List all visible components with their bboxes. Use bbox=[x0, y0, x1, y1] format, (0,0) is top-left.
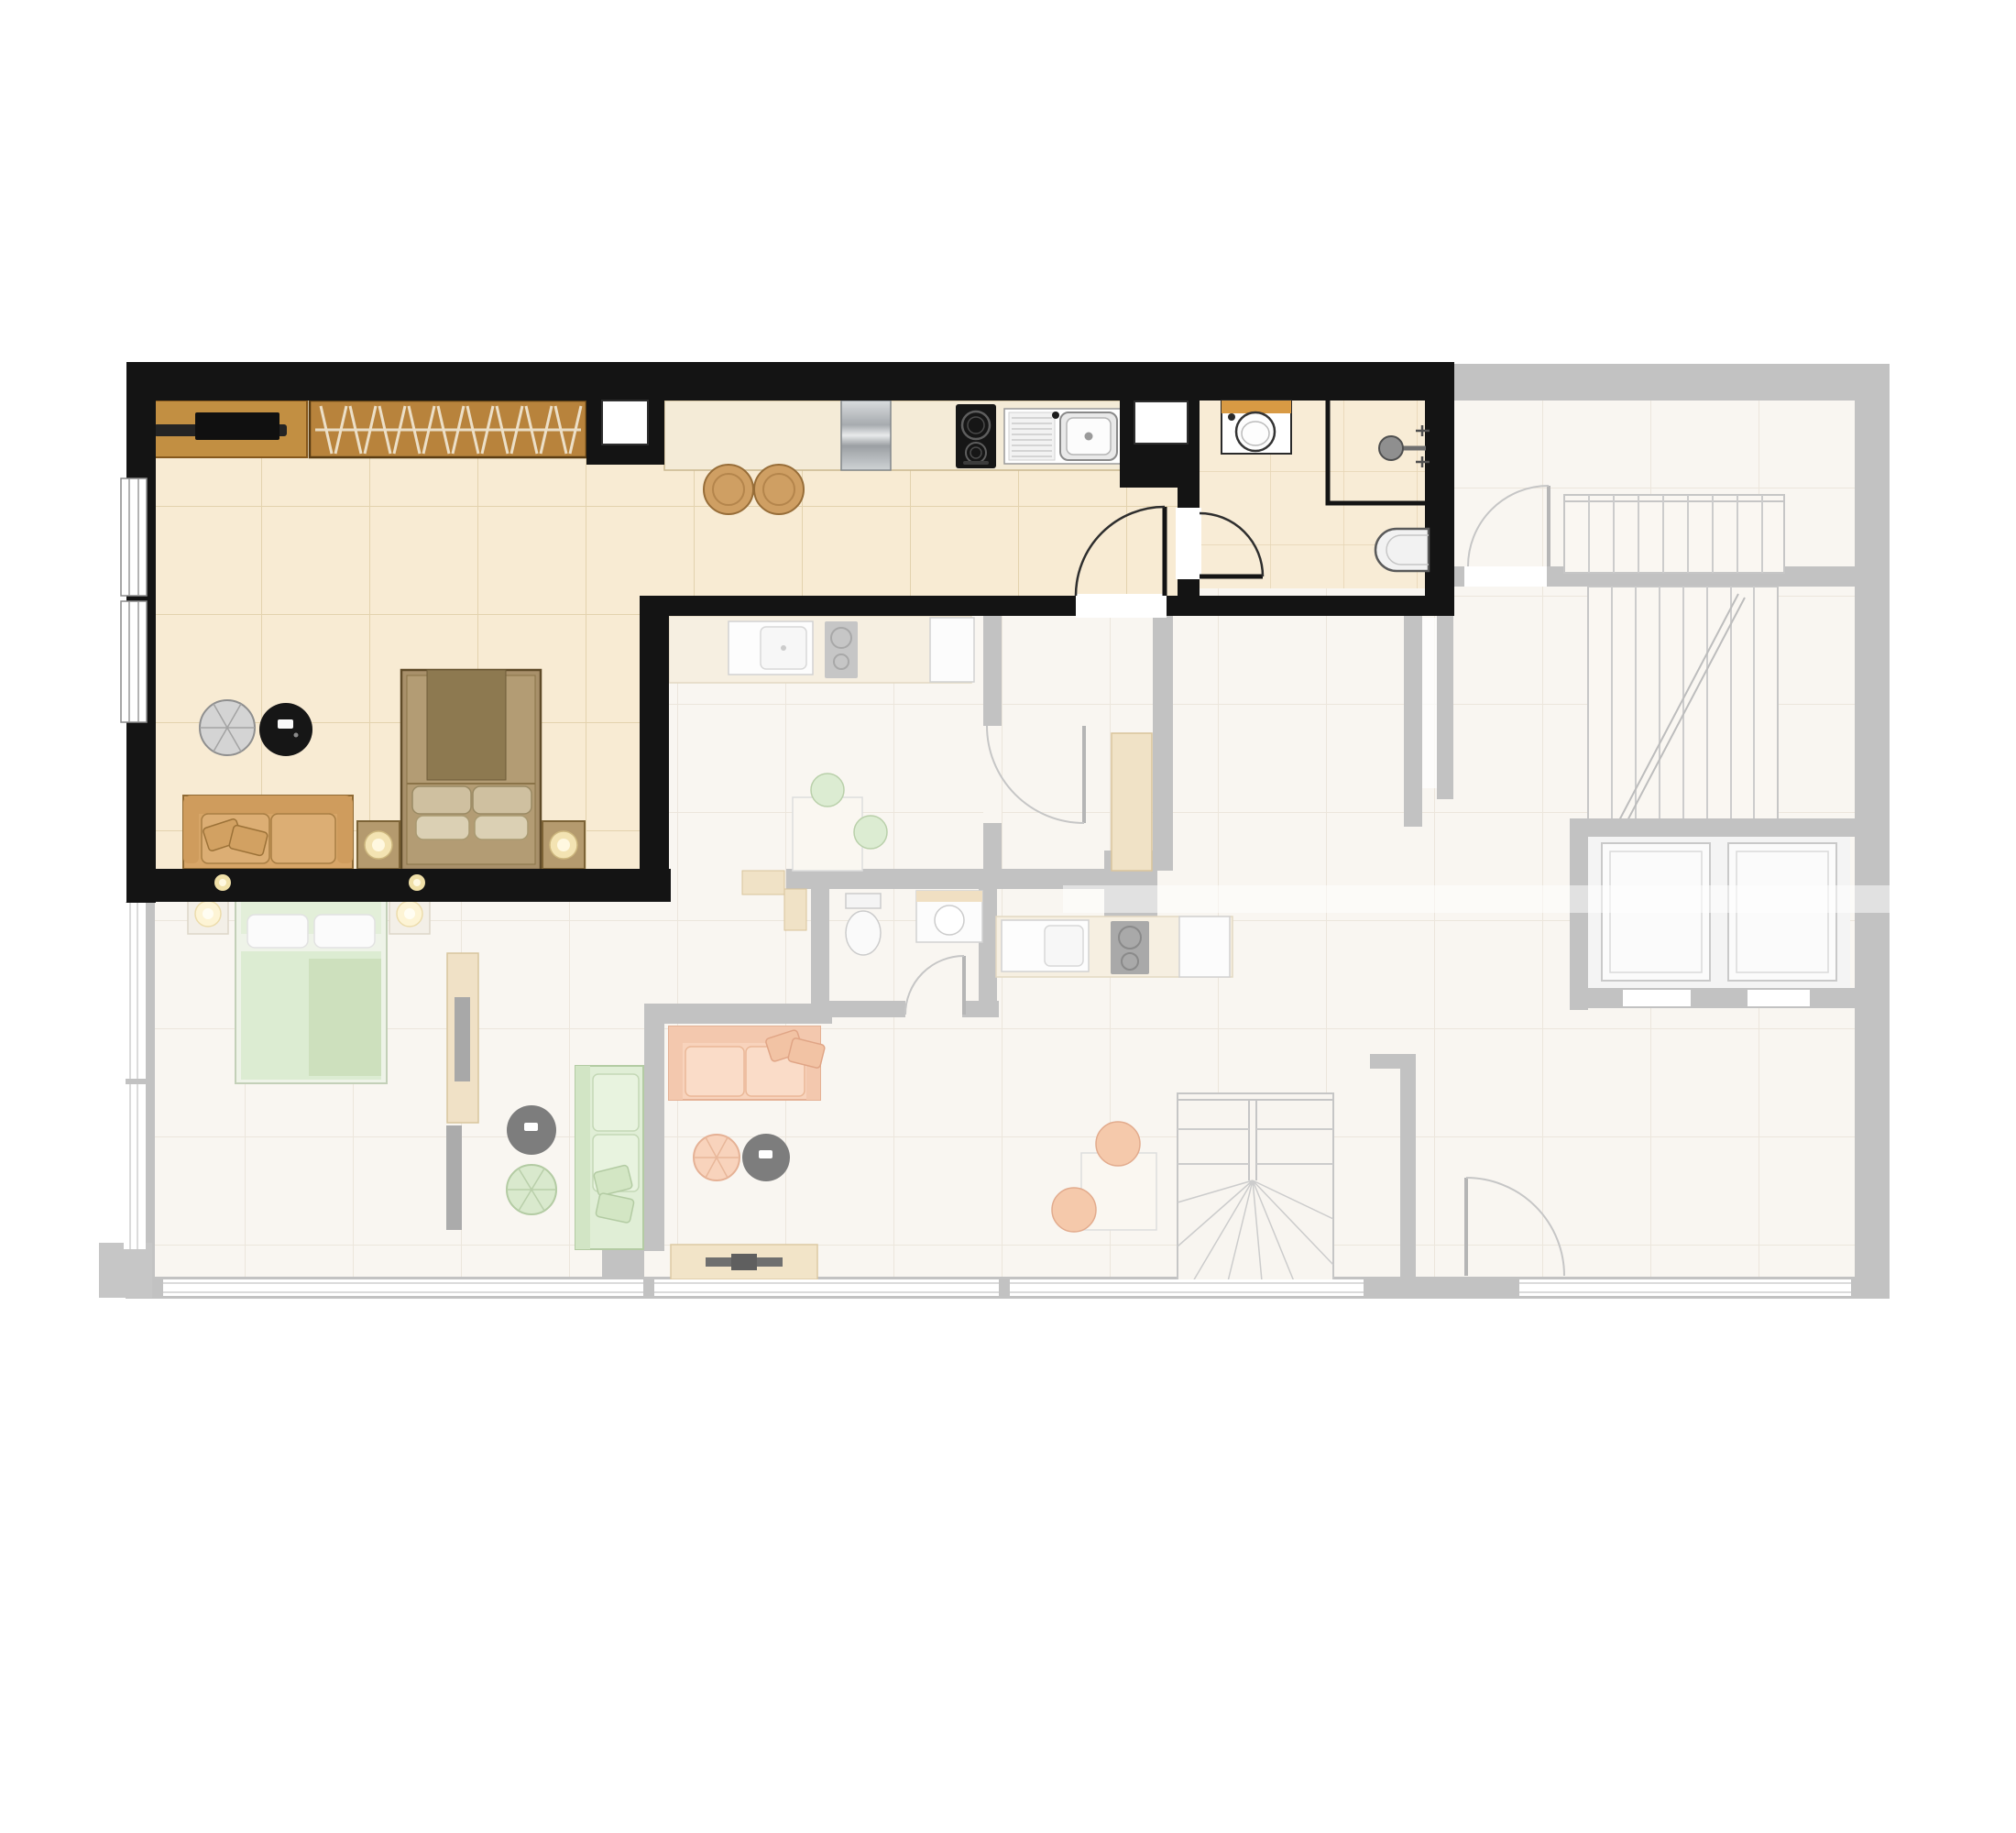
dining2-chair-2 bbox=[1052, 1188, 1096, 1232]
window-left-f1 bbox=[124, 903, 146, 1079]
floor-plan bbox=[0, 0, 2016, 1833]
wall-bath2-top bbox=[786, 869, 1107, 889]
table2-speck bbox=[524, 1123, 538, 1131]
window-left-f2 bbox=[124, 1084, 146, 1249]
window-bottom-3 bbox=[1010, 1279, 1364, 1296]
shelf2 bbox=[446, 1125, 462, 1230]
sink-faucet bbox=[1052, 412, 1059, 419]
sofa3-arm-left bbox=[669, 1043, 683, 1100]
floor-plan-svg bbox=[0, 0, 2016, 1833]
dining2-chair-1 bbox=[1096, 1122, 1140, 1166]
wall-hall-left-stub bbox=[983, 823, 1002, 871]
wall-bath-jamb-upper bbox=[1178, 486, 1200, 510]
window-bottom-1 bbox=[163, 1279, 643, 1296]
tv2-screen bbox=[455, 997, 470, 1081]
elevator-bottom-wall bbox=[1570, 988, 1868, 1008]
lamp-left-core bbox=[372, 839, 385, 851]
kitchen2-fridge bbox=[930, 618, 974, 682]
window-bottom-2 bbox=[654, 1279, 999, 1296]
window-2 bbox=[121, 601, 147, 722]
kitchen2-drain bbox=[781, 645, 786, 651]
elevator-shaft-top bbox=[1570, 818, 1868, 837]
bath-door-opening bbox=[1176, 508, 1201, 579]
window-1 bbox=[121, 478, 147, 596]
tv-screen bbox=[195, 412, 279, 440]
wall-bath2-left bbox=[811, 889, 829, 1017]
basin2-wood bbox=[916, 891, 982, 902]
table3-speck bbox=[759, 1150, 772, 1158]
wall-bottom-living bbox=[126, 869, 671, 902]
stool-1 bbox=[704, 465, 753, 514]
light-streak bbox=[1063, 885, 1890, 913]
stool-2 bbox=[754, 465, 804, 514]
wall-kitchen-bottom bbox=[640, 596, 1076, 616]
window-bottom-4 bbox=[1519, 1279, 1851, 1296]
coffee-table bbox=[259, 703, 312, 756]
sofa-back bbox=[183, 796, 353, 814]
wall-bath-jamb-lower bbox=[1178, 577, 1200, 616]
sofa2-back bbox=[575, 1066, 590, 1249]
stairs-upper-flight bbox=[1564, 495, 1784, 573]
wall-bath2-bottom-left bbox=[811, 1001, 905, 1017]
corner-pilaster bbox=[99, 1243, 152, 1298]
sink-drainboard bbox=[1009, 412, 1055, 460]
duct-1 bbox=[602, 401, 648, 445]
cooktop-label bbox=[963, 461, 989, 465]
wall-right bbox=[1425, 362, 1454, 616]
door-landing-opening bbox=[1464, 566, 1547, 587]
elevator-door-gap-2 bbox=[1748, 990, 1810, 1006]
wall-mid-h1 bbox=[644, 1004, 832, 1024]
bed-pillow-2 bbox=[473, 786, 531, 814]
toilet2-tank bbox=[846, 894, 881, 908]
niche-slot bbox=[1422, 618, 1437, 788]
sofa-arm-left bbox=[183, 803, 199, 863]
wall-niche-left bbox=[1404, 616, 1422, 827]
wall-hall-left bbox=[983, 616, 1002, 726]
sink-drain bbox=[1085, 433, 1093, 441]
bed2-duvet-fold bbox=[309, 959, 381, 1076]
toilet2-bowl bbox=[846, 911, 881, 955]
wall-step bbox=[640, 596, 669, 871]
wall-entry-bottom bbox=[1167, 596, 1454, 616]
wall-hall-right bbox=[1153, 616, 1173, 871]
sofa2-cushion-1 bbox=[593, 1074, 639, 1131]
bed-pillow-1 bbox=[412, 786, 471, 814]
tv3-box bbox=[731, 1254, 757, 1270]
wall-top bbox=[128, 362, 1454, 401]
door-apt2-opening bbox=[983, 726, 1002, 823]
closet-wood-2 bbox=[784, 889, 806, 930]
kitchen2-counter bbox=[669, 616, 971, 683]
kitchen3-fridge bbox=[1179, 916, 1230, 977]
coffee-table-dot bbox=[294, 733, 299, 738]
elevator-shaft-left bbox=[1570, 818, 1588, 1010]
lamp-right-core bbox=[557, 839, 570, 851]
door-bath2-opening bbox=[905, 1001, 962, 1017]
lamp2-left-core bbox=[203, 908, 214, 919]
duct-2 bbox=[1134, 401, 1188, 444]
washbasin-faucet bbox=[1228, 413, 1235, 421]
bed-pillow-3 bbox=[416, 816, 469, 840]
wall-mid-v1 bbox=[644, 1024, 664, 1251]
sofa3-cushion-1 bbox=[685, 1047, 744, 1096]
sofa-cushion-2 bbox=[271, 814, 335, 863]
dining1-chair-2 bbox=[854, 816, 887, 849]
bed-pillow-4 bbox=[475, 816, 528, 840]
shower-head bbox=[1379, 436, 1403, 460]
closet-wood-1 bbox=[742, 871, 784, 895]
kitchen3-basin bbox=[1045, 926, 1083, 966]
basin2-bowl bbox=[935, 906, 964, 935]
wall-light-2-core bbox=[413, 879, 421, 886]
fridge bbox=[841, 401, 891, 470]
bed2-pillow-1 bbox=[247, 915, 308, 948]
wall-top-faded bbox=[1452, 364, 1867, 401]
lamp2-right-core bbox=[404, 908, 415, 919]
entry-door-opening bbox=[1076, 594, 1167, 618]
wall-light-1-core bbox=[219, 879, 226, 886]
wall-corridor-step-v bbox=[1400, 1054, 1416, 1283]
coffee-table-speck bbox=[278, 719, 293, 729]
bed2-pillow-2 bbox=[314, 915, 375, 948]
hall-wardrobe bbox=[1112, 733, 1152, 871]
bed-throw bbox=[427, 670, 506, 780]
elevator-door-gap-1 bbox=[1623, 990, 1691, 1006]
sofa-arm-right bbox=[337, 803, 353, 863]
dining1-chair-1 bbox=[811, 774, 844, 807]
wall-niche-right bbox=[1437, 616, 1453, 799]
dining1-table bbox=[793, 797, 862, 871]
